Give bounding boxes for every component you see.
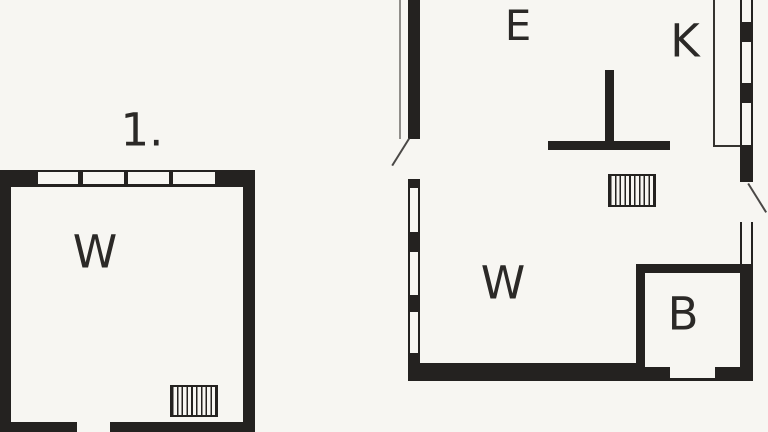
interior-wall-vertical xyxy=(605,70,614,148)
building-2-right-wall xyxy=(740,22,753,42)
window-icon xyxy=(173,170,215,187)
building-1-right-wall xyxy=(243,170,255,432)
building-1-number-label: 1. xyxy=(121,108,164,153)
room-b-left-wall xyxy=(636,264,645,368)
floor-plan: 1. W xyxy=(0,0,768,432)
interior-wall-horizontal xyxy=(548,141,670,150)
building-2-left-wall-upper xyxy=(408,0,420,139)
stairs-hatch-icon xyxy=(608,174,656,207)
eaves-line xyxy=(399,0,401,139)
building-1-left-wall xyxy=(0,170,11,432)
building-2-room-b-label: B xyxy=(668,292,699,337)
k-partition-wall-horizontal xyxy=(713,145,740,147)
window-icon xyxy=(408,188,420,232)
window-icon xyxy=(740,0,753,22)
building-2-room-k-label: K xyxy=(670,19,700,64)
room-b-top-wall xyxy=(636,264,753,273)
window-icon xyxy=(83,170,124,187)
window-icon xyxy=(740,103,753,145)
building-2-room-w-label: W xyxy=(481,261,526,306)
door-opening xyxy=(670,367,715,378)
building-2-right-wall xyxy=(740,145,753,182)
building-2-right-wall xyxy=(740,264,753,381)
window-icon xyxy=(740,222,753,264)
window-icon xyxy=(408,312,420,353)
window-icon xyxy=(128,170,169,187)
door-swing-line xyxy=(747,183,767,213)
k-partition-wall-vertical xyxy=(713,0,715,147)
building-1-room-w-label: W xyxy=(73,230,118,275)
window-icon xyxy=(740,42,753,83)
building-1-bottom-wall xyxy=(0,422,255,432)
window-icon xyxy=(408,252,420,295)
window-icon xyxy=(38,170,78,187)
stairs-hatch-icon xyxy=(170,385,218,417)
door-swing-line xyxy=(391,138,410,166)
door-opening xyxy=(77,422,110,432)
building-2-room-e-label: E xyxy=(505,5,532,47)
building-2-right-wall xyxy=(740,83,753,103)
